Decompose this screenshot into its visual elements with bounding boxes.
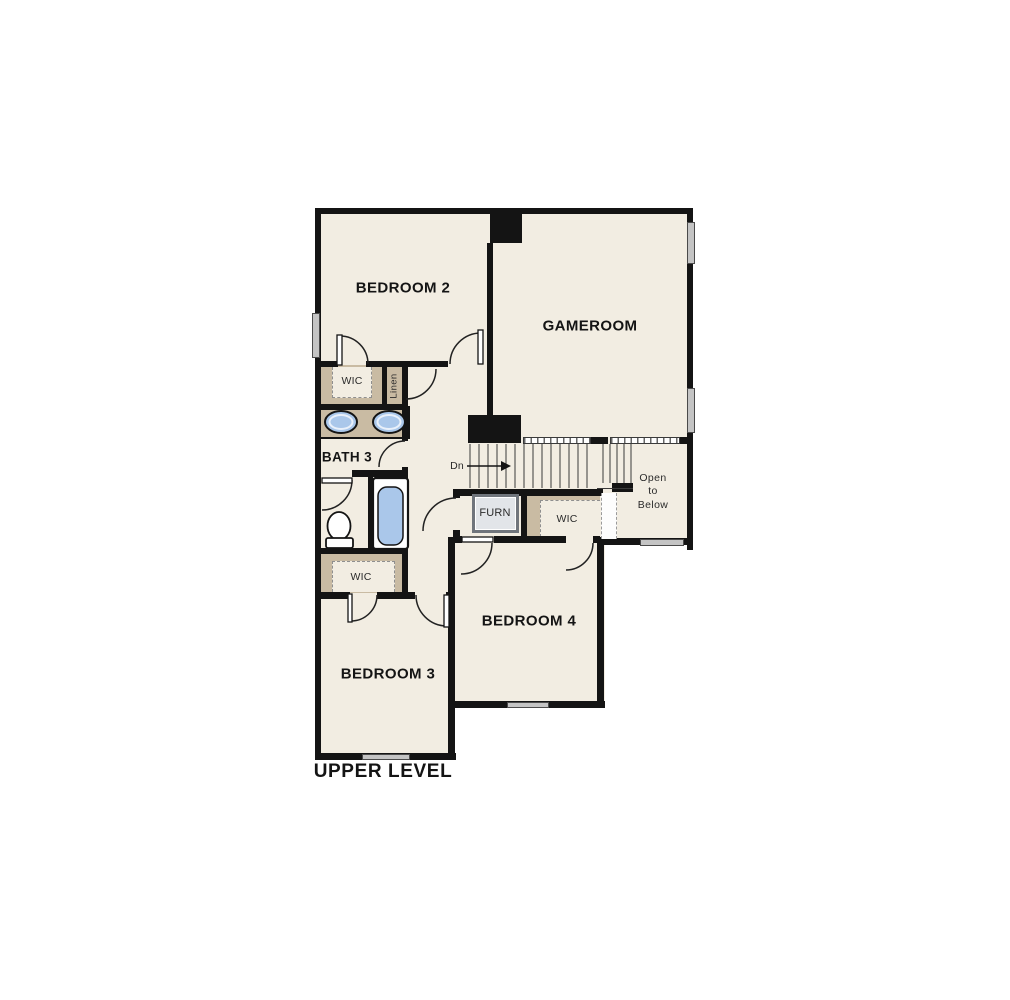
door-leaf-bedroom2-wic bbox=[337, 335, 342, 365]
door-leaf-bedroom4-entry bbox=[462, 537, 493, 542]
door-arc-bedroom3-entry bbox=[416, 595, 447, 626]
furnace-label: FURN bbox=[479, 507, 510, 519]
door-leaf-bedroom2-entry bbox=[478, 330, 483, 364]
vanity-sinks bbox=[325, 411, 405, 433]
door-arc-watercloset bbox=[322, 480, 352, 510]
bathtub bbox=[373, 478, 408, 549]
floor-plan-canvas: BEDROOM 2 GAMEROOM BATH 3 BEDROOM 4 BEDR… bbox=[0, 0, 1010, 1000]
plan-title: UPPER LEVEL bbox=[314, 761, 453, 783]
door-arc-bedroom3-wic bbox=[351, 595, 377, 621]
closet-label-wic-bedroom2: WIC bbox=[341, 375, 362, 387]
door-leaf-watercloset bbox=[322, 478, 352, 483]
door-arc-bedroom2-wic bbox=[340, 336, 368, 364]
door-leaf-bedroom3-entry bbox=[444, 595, 449, 627]
closet-label-wic-bedroom4: WIC bbox=[556, 513, 577, 525]
open-to-below-line2: to bbox=[648, 485, 658, 497]
open-to-below-label: Open to Below bbox=[621, 472, 685, 512]
toilet bbox=[326, 512, 353, 548]
closet-label-wic-bedroom3: WIC bbox=[350, 571, 371, 583]
dn-arrow bbox=[467, 461, 511, 471]
fixtures-overlay bbox=[0, 0, 1010, 1000]
door-arc-bedroom4-wic bbox=[566, 543, 593, 570]
door-leaf-bedroom3-wic bbox=[348, 594, 352, 622]
room-label-bedroom2: BEDROOM 2 bbox=[356, 280, 450, 297]
closet-label-linen: Linen bbox=[389, 373, 400, 398]
room-label-gameroom: GAMEROOM bbox=[543, 318, 638, 335]
door-arc-linen bbox=[406, 369, 436, 399]
door-arc-bedroom2-entry bbox=[450, 333, 481, 364]
door-arc-bedroom4-entry bbox=[461, 543, 492, 574]
open-to-below-line3: Below bbox=[638, 499, 669, 511]
stairs-down-label: Dn bbox=[450, 460, 464, 472]
room-label-bedroom4: BEDROOM 4 bbox=[482, 613, 576, 630]
door-arc-furnace bbox=[423, 498, 456, 531]
door-arc-bath3-entry bbox=[379, 441, 405, 467]
room-label-bedroom3: BEDROOM 3 bbox=[341, 666, 435, 683]
room-label-bath3: BATH 3 bbox=[322, 450, 372, 465]
open-to-below-line1: Open bbox=[639, 472, 666, 484]
